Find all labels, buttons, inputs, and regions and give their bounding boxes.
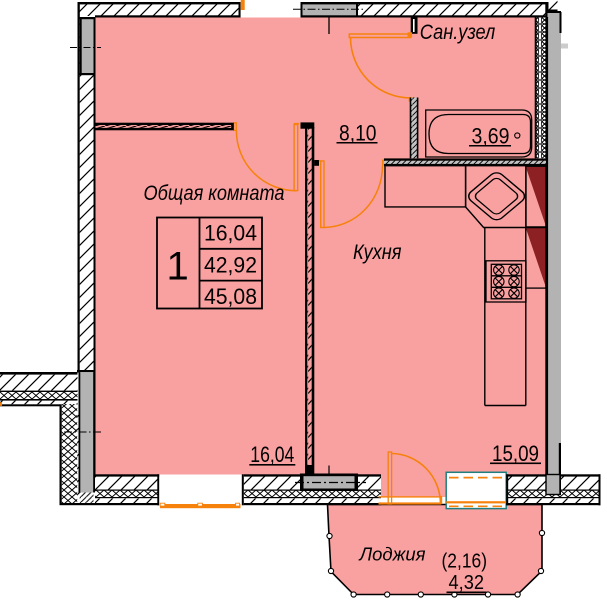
svg-text:Кухня: Кухня bbox=[353, 241, 402, 264]
svg-text:3,69: 3,69 bbox=[472, 123, 510, 148]
svg-text:Общая комната: Общая комната bbox=[144, 182, 285, 205]
svg-text:45,08: 45,08 bbox=[204, 284, 257, 309]
svg-text:16,04: 16,04 bbox=[204, 221, 257, 246]
svg-text:Лоджия: Лоджия bbox=[358, 544, 425, 564]
svg-text:16,04: 16,04 bbox=[250, 442, 294, 467]
svg-text:15,09: 15,09 bbox=[492, 441, 539, 466]
svg-text:42,92: 42,92 bbox=[204, 253, 257, 278]
svg-text:Сан.узел: Сан.узел bbox=[420, 21, 496, 44]
svg-text:1: 1 bbox=[167, 245, 189, 289]
svg-text:8,10: 8,10 bbox=[339, 120, 377, 145]
svg-text:4,32: 4,32 bbox=[449, 572, 485, 594]
svg-text:(2,16): (2,16) bbox=[442, 551, 488, 573]
